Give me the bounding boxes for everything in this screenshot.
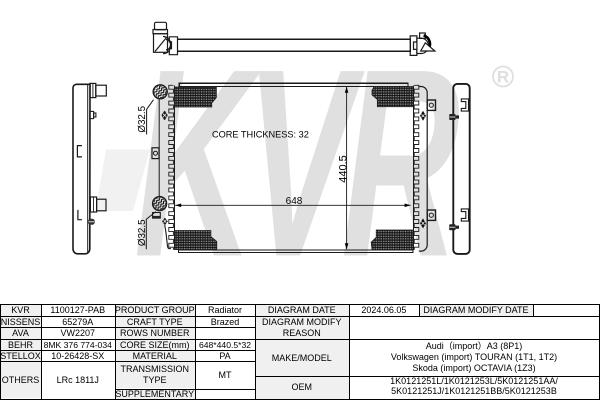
- svg-text:Ø32.5: Ø32.5: [137, 105, 148, 132]
- svg-text:440.5: 440.5: [337, 155, 349, 183]
- svg-text:Ø32.5: Ø32.5: [137, 219, 148, 246]
- svg-text:648: 648: [286, 196, 303, 207]
- svg-text:CORE THICKNESS: 32: CORE THICKNESS: 32: [212, 129, 309, 139]
